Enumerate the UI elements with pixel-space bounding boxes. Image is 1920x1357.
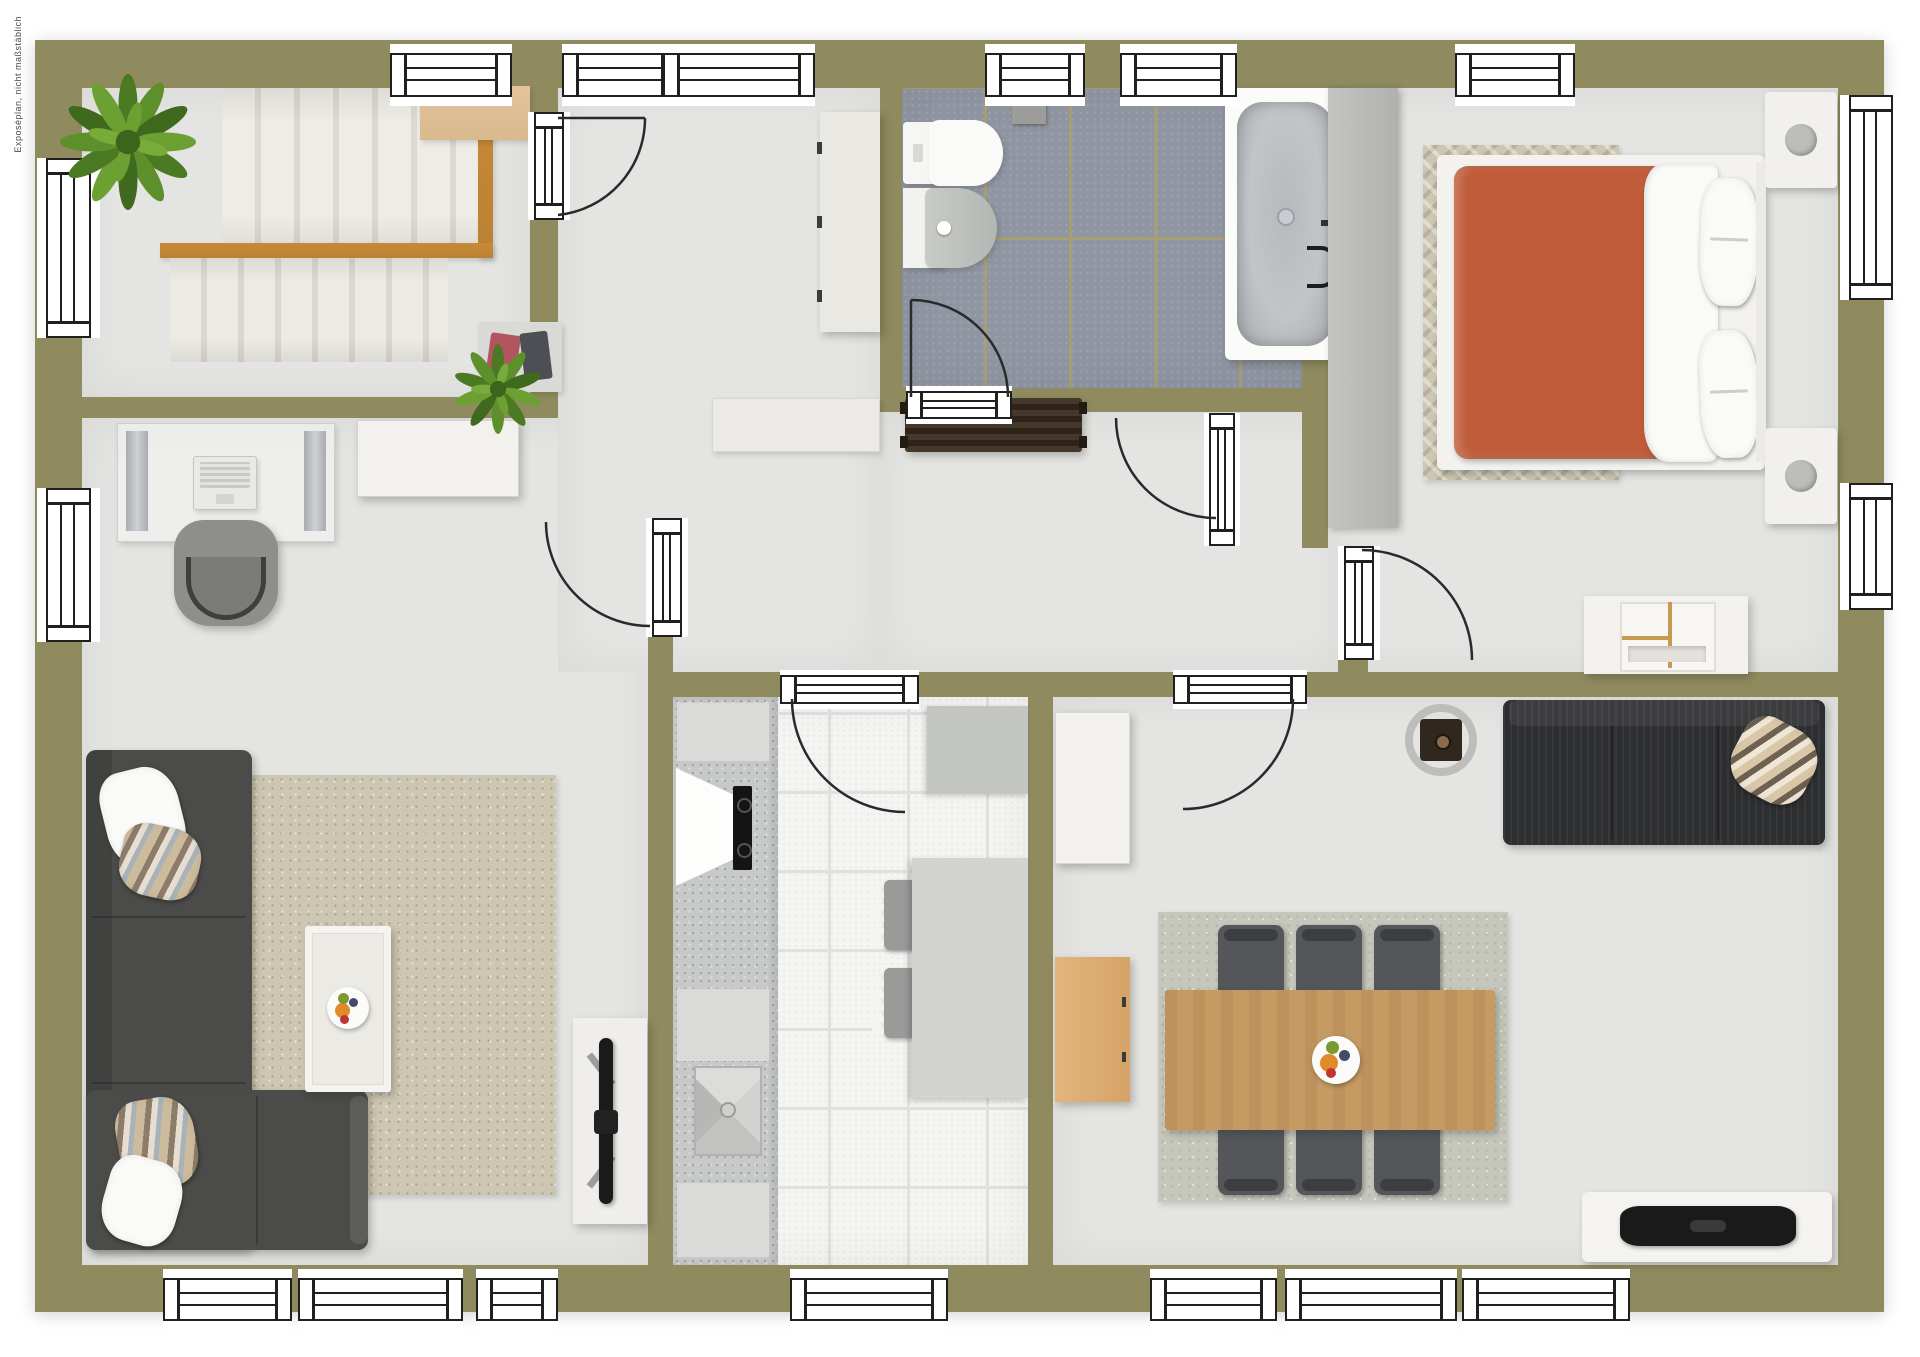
window <box>1840 95 1902 300</box>
office-chair <box>174 520 278 626</box>
cooktop <box>733 786 752 870</box>
bathtub <box>1225 88 1345 360</box>
window <box>1150 1269 1277 1330</box>
door-frame-living <box>646 518 688 637</box>
kitchen-appliance-block <box>927 706 1028 794</box>
tv-screen-living <box>599 1038 613 1204</box>
potted-plant-icon <box>60 74 196 210</box>
tv-board-dining <box>1582 1192 1832 1262</box>
staircase-lower-flight <box>170 258 448 362</box>
fruit-bowl <box>327 987 369 1029</box>
bathroom-sink <box>903 188 997 268</box>
window <box>163 1269 292 1330</box>
bed-pillow <box>1698 177 1760 307</box>
staircase-handrail-horizontal <box>160 243 493 258</box>
window <box>1840 483 1902 610</box>
window <box>1285 1269 1457 1330</box>
hallway-tall-cabinet <box>820 112 880 332</box>
window <box>37 488 100 642</box>
window <box>1120 44 1237 106</box>
dining-wood-cabinet <box>1055 957 1130 1102</box>
potted-plant-icon <box>453 344 543 434</box>
door-frame-bathroom <box>906 386 1012 424</box>
kitchen-chair <box>870 968 916 1038</box>
desk-leg <box>304 431 326 531</box>
window <box>562 44 678 106</box>
door-frame-kitchen <box>780 670 919 709</box>
dining-sideboard <box>1055 712 1130 864</box>
wall-kitchen-west-stub <box>648 635 673 675</box>
bedroom-wardrobe <box>1328 88 1398 528</box>
wall-bedroom-west <box>1302 412 1328 548</box>
stove-ring <box>1405 704 1477 776</box>
door-frame-bedroom <box>1338 546 1380 660</box>
nightstand <box>1765 428 1837 524</box>
laptop <box>193 456 257 510</box>
window <box>390 44 512 106</box>
kitchen-sink <box>694 1066 762 1156</box>
window <box>663 44 815 106</box>
door-frame-staircase <box>528 112 570 220</box>
bed-pillow <box>1698 329 1760 459</box>
kitchen-chair <box>870 880 916 950</box>
bed-headboard <box>1756 162 1766 462</box>
bedroom-dresser <box>1584 596 1748 674</box>
window <box>790 1269 948 1330</box>
toilet <box>903 120 1003 186</box>
floor-plan: Exposéplan, nicht maßstäblich <box>0 0 1920 1357</box>
desk-leg <box>126 431 148 531</box>
nightstand <box>1765 92 1837 188</box>
window <box>1455 44 1575 106</box>
window <box>1462 1269 1630 1330</box>
door-frame-dining <box>1173 670 1307 709</box>
door-frame-hall-nook <box>1204 413 1240 546</box>
window <box>298 1269 463 1330</box>
window <box>476 1269 558 1330</box>
window <box>985 44 1085 106</box>
fruit-bowl <box>1312 1036 1360 1084</box>
hallway-console <box>712 398 880 452</box>
watermark-text: Exposéplan, nicht maßstäblich <box>13 16 23 153</box>
bed-duvet-terracotta <box>1454 166 1660 459</box>
kitchen-table <box>912 858 1028 1098</box>
table-lamp-icon <box>1785 124 1817 156</box>
tv-screen-dining <box>1620 1206 1796 1246</box>
table-lamp-icon <box>1785 460 1817 492</box>
